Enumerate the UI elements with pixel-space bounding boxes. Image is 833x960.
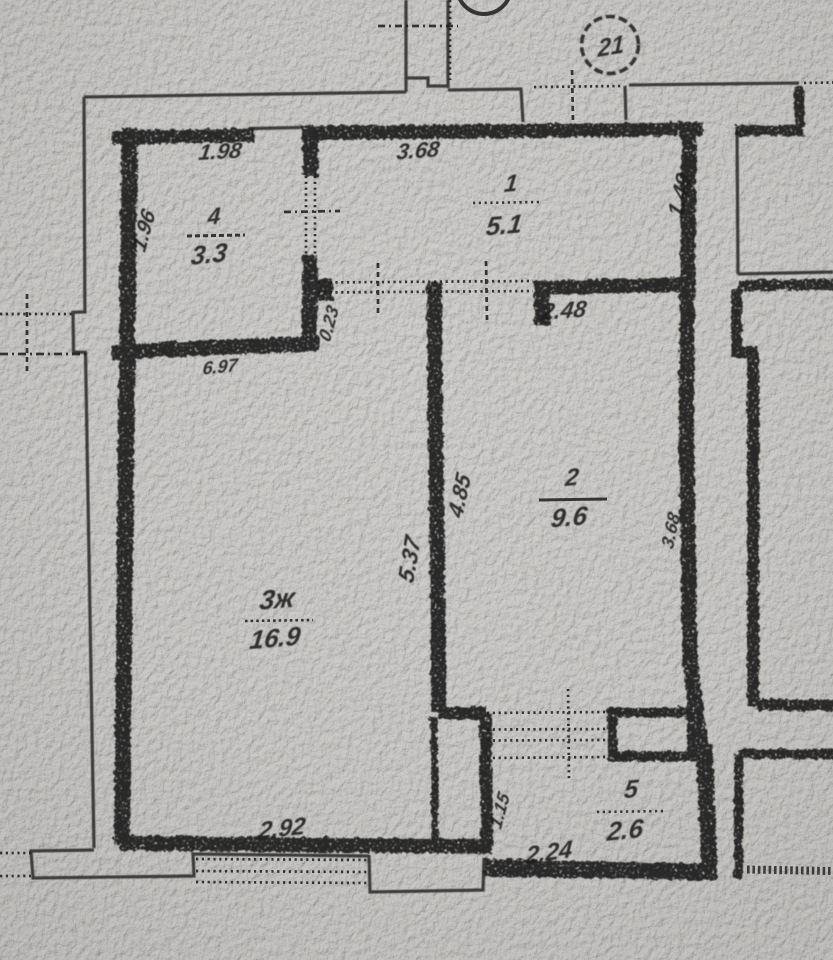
svg-text:4: 4: [206, 202, 222, 230]
svg-text:3ж: 3ж: [258, 581, 298, 615]
svg-text:2.92: 2.92: [256, 813, 307, 845]
svg-text:16.9: 16.9: [248, 621, 302, 656]
svg-text:3.3: 3.3: [190, 237, 229, 271]
svg-text:5.1: 5.1: [484, 208, 524, 241]
svg-text:2.48: 2.48: [539, 296, 588, 325]
svg-text:2.6: 2.6: [605, 813, 645, 847]
svg-text:1.98: 1.98: [197, 138, 244, 165]
svg-text:21: 21: [596, 31, 624, 63]
svg-text:9.6: 9.6: [549, 500, 589, 533]
svg-text:3.68: 3.68: [395, 136, 442, 164]
svg-text:6.97: 6.97: [202, 355, 240, 379]
